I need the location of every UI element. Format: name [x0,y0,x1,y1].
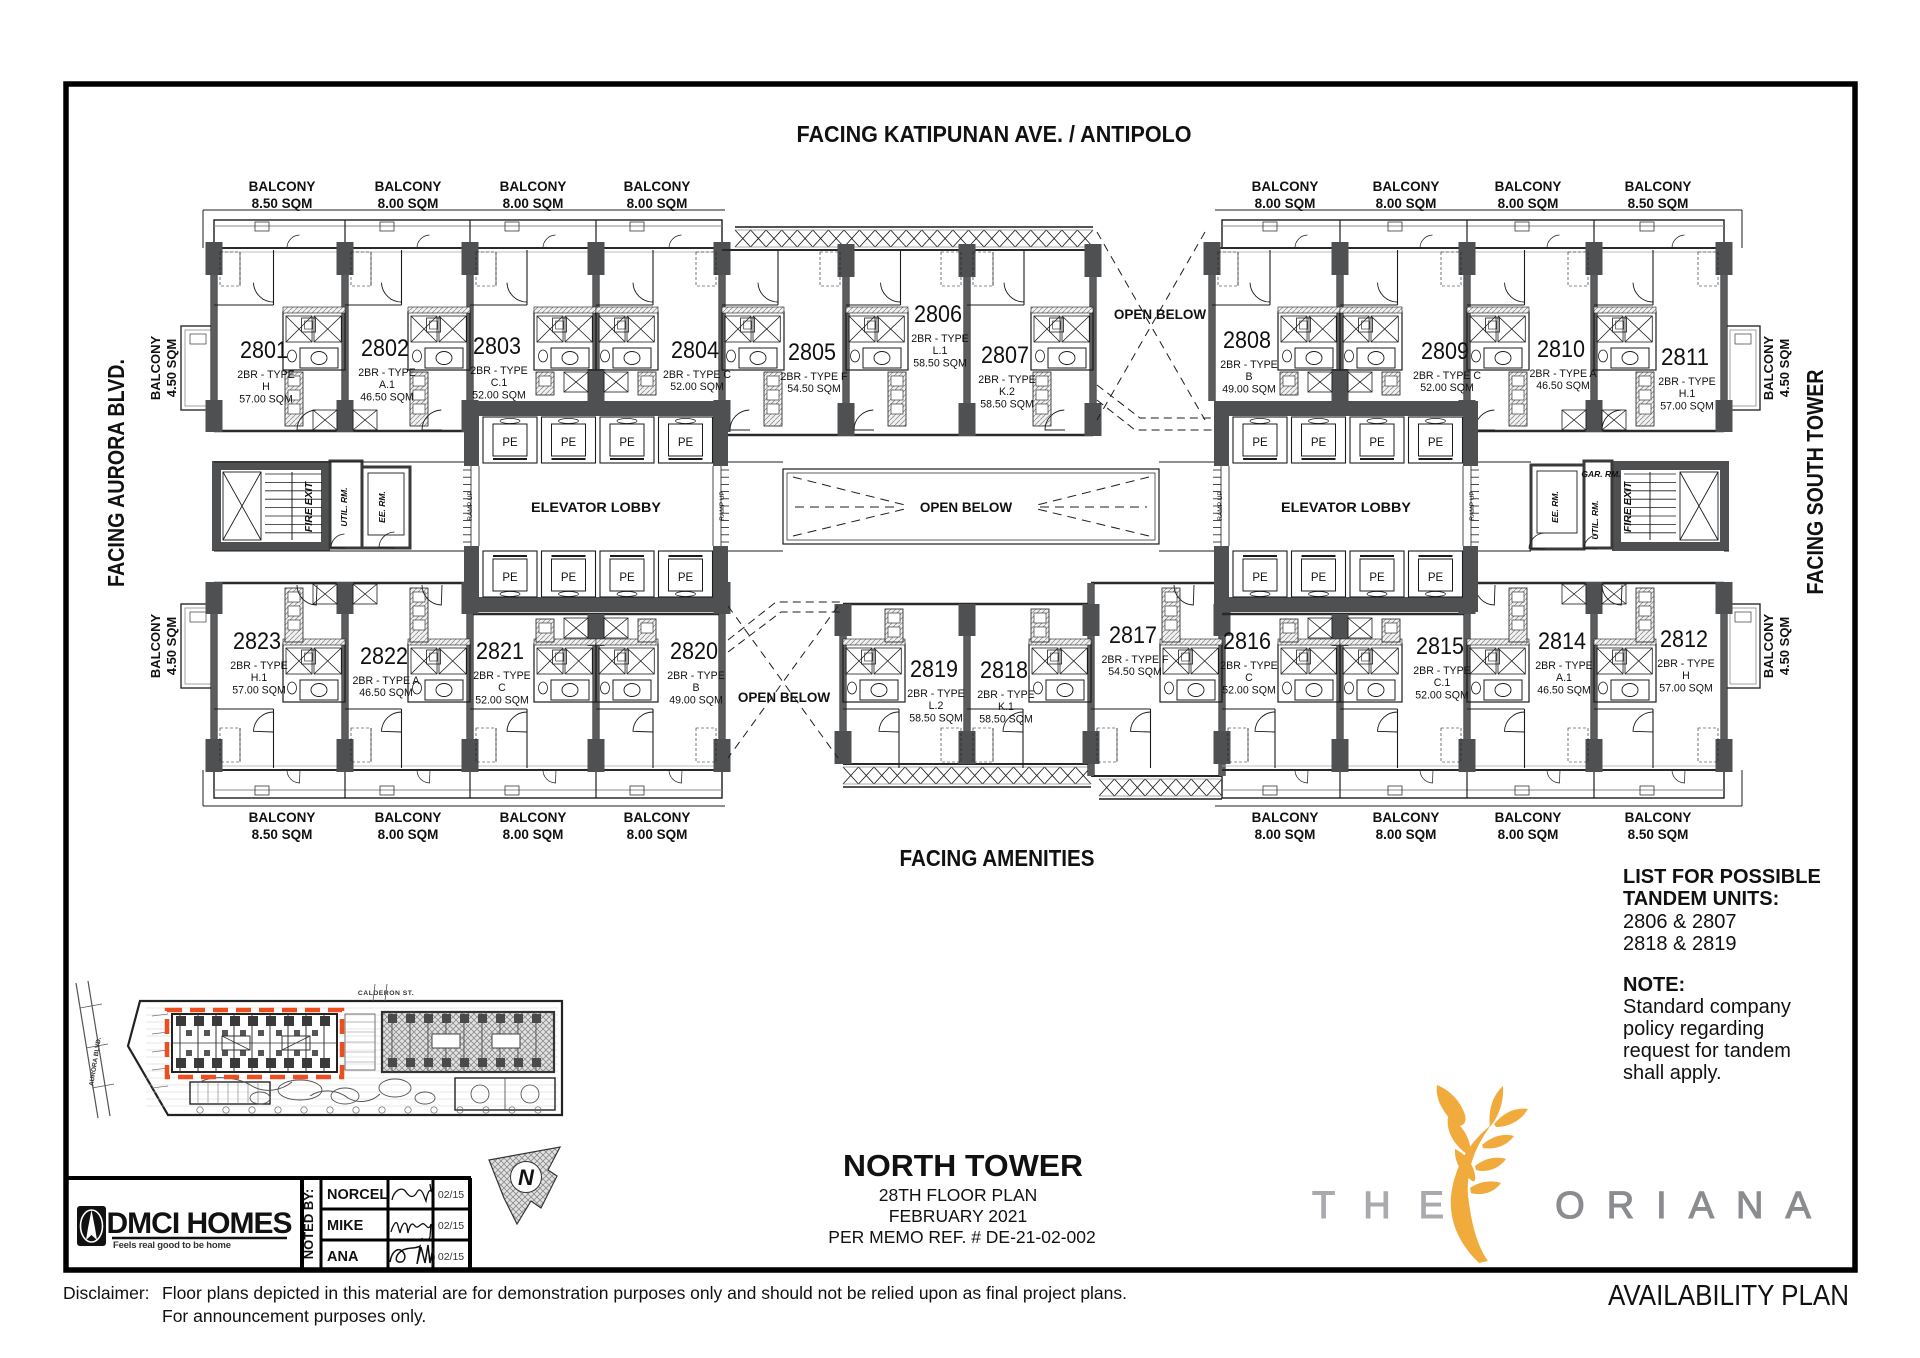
svg-text:8.00 SQM: 8.00 SQM [1498,196,1559,211]
svg-text:2BR - TYPE: 2BR - TYPE [978,374,1036,386]
svg-text:28TH FLOOR PLAN: 28TH FLOOR PLAN [879,1185,1038,1205]
svg-text:2BR - TYPE: 2BR - TYPE [237,369,295,381]
svg-text:2BR - TYPE: 2BR - TYPE [977,689,1035,701]
svg-text:2806 & 2807: 2806 & 2807 [1623,911,1736,933]
svg-text:2BR - TYPE: 2BR - TYPE [470,365,528,377]
svg-text:2817: 2817 [1109,622,1157,649]
svg-text:BALCONY: BALCONY [1252,810,1319,825]
svg-text:BALCONY: BALCONY [249,810,316,825]
svg-text:54.50 SQM: 54.50 SQM [1108,666,1162,678]
svg-text:8.00 SQM: 8.00 SQM [627,196,688,211]
svg-text:NORCEL: NORCEL [327,1187,388,1203]
svg-text:PE: PE [1252,572,1268,584]
svg-text:EE. RM.: EE. RM. [1550,491,1560,523]
svg-text:2814: 2814 [1538,628,1586,655]
svg-text:RAMP UP: RAMP UP [1469,491,1476,521]
svg-text:B: B [1245,371,1252,383]
svg-text:2BR - TYPE: 2BR - TYPE [358,367,416,379]
svg-text:2BR - TYPE A: 2BR - TYPE A [353,675,421,687]
svg-text:RAMP UP: RAMP UP [719,491,726,521]
svg-text:PE: PE [1369,437,1385,449]
svg-text:46.50 SQM: 46.50 SQM [360,391,414,403]
svg-text:PE: PE [1428,437,1444,449]
svg-text:8.00 SQM: 8.00 SQM [378,827,439,842]
svg-text:PE: PE [619,437,635,449]
svg-text:H: H [262,381,270,393]
svg-text:Disclaimer:: Disclaimer: [63,1283,150,1303]
svg-text:4.50 SQM: 4.50 SQM [164,339,179,398]
svg-text:PE: PE [678,572,694,584]
svg-text:N: N [518,1165,535,1190]
svg-text:2BR - TYPE C: 2BR - TYPE C [1413,370,1481,382]
svg-text:58.50 SQM: 58.50 SQM [909,712,963,724]
svg-text:BALCONY: BALCONY [1625,810,1692,825]
svg-text:BALCONY: BALCONY [500,810,567,825]
svg-text:2818: 2818 [980,657,1028,684]
svg-text:PE: PE [619,572,635,584]
svg-text:PE: PE [1428,572,1444,584]
svg-text:2822: 2822 [360,643,408,670]
svg-text:PE: PE [1252,437,1268,449]
svg-text:PE: PE [561,437,577,449]
svg-text:2802: 2802 [361,335,409,362]
svg-text:52.00 SQM: 52.00 SQM [472,389,526,401]
svg-text:C.1: C.1 [491,377,508,389]
svg-text:C: C [498,682,506,694]
svg-text:46.50 SQM: 46.50 SQM [1536,380,1590,392]
svg-text:8.00 SQM: 8.00 SQM [503,196,564,211]
svg-text:Floor plans depicted in this m: Floor plans depicted in this material ar… [162,1283,1127,1303]
svg-text:policy regarding: policy regarding [1623,1018,1764,1040]
svg-text:52.00 SQM: 52.00 SQM [1420,382,1474,394]
svg-text:B: B [692,682,699,694]
svg-text:BALCONY: BALCONY [624,179,691,194]
svg-text:2810: 2810 [1537,336,1585,363]
svg-text:FEBRUARY 2021: FEBRUARY 2021 [889,1206,1027,1226]
svg-text:2819: 2819 [910,656,958,683]
svg-text:ELEVATOR LOBBY: ELEVATOR LOBBY [1281,500,1411,515]
svg-text:4.50 SQM: 4.50 SQM [1777,339,1792,398]
svg-text:OPEN BELOW: OPEN BELOW [1114,307,1207,322]
svg-text:C.1: C.1 [1434,677,1451,689]
svg-text:52.00 SQM: 52.00 SQM [1222,684,1276,696]
svg-text:UTIL. RM.: UTIL. RM. [339,487,349,526]
svg-text:57.00 SQM: 57.00 SQM [239,393,293,405]
svg-text:2823: 2823 [233,628,281,655]
svg-text:54.50 SQM: 54.50 SQM [787,383,841,395]
svg-text:2BR - TYPE: 2BR - TYPE [1658,376,1716,388]
svg-text:8.00 SQM: 8.00 SQM [627,827,688,842]
svg-text:8.00 SQM: 8.00 SQM [1376,196,1437,211]
svg-text:8.00 SQM: 8.00 SQM [1376,827,1437,842]
svg-text:NORTH TOWER: NORTH TOWER [843,1148,1083,1183]
svg-text:K.2: K.2 [999,386,1015,398]
svg-text:BALCONY: BALCONY [1625,179,1692,194]
svg-text:2818 & 2819: 2818 & 2819 [1623,933,1736,955]
svg-text:8.50 SQM: 8.50 SQM [252,196,313,211]
svg-text:2806: 2806 [914,301,962,328]
svg-text:2801: 2801 [240,337,288,364]
svg-text:THE: THE [1312,1185,1472,1227]
svg-text:8.00 SQM: 8.00 SQM [503,827,564,842]
svg-text:49.00 SQM: 49.00 SQM [669,694,723,706]
svg-text:OPEN BELOW: OPEN BELOW [738,690,831,705]
svg-text:Feels real good to be home: Feels real good to be home [113,1240,231,1251]
svg-text:2BR - TYPE F: 2BR - TYPE F [1102,654,1169,666]
svg-text:2804: 2804 [671,337,719,364]
svg-text:4.50 SQM: 4.50 SQM [164,617,179,676]
svg-text:2BR - TYPE F: 2BR - TYPE F [781,371,848,383]
svg-text:8.00 SQM: 8.00 SQM [378,196,439,211]
svg-text:shall apply.: shall apply. [1623,1062,1722,1084]
svg-text:57.00 SQM: 57.00 SQM [1660,400,1714,412]
svg-text:PER MEMO REF. # DE-21-02-002: PER MEMO REF. # DE-21-02-002 [828,1227,1095,1247]
svg-text:TANDEM UNITS:: TANDEM UNITS: [1623,888,1779,910]
svg-text:BALCONY: BALCONY [1761,614,1776,679]
svg-text:57.00 SQM: 57.00 SQM [1659,682,1713,694]
svg-text:BALCONY: BALCONY [148,336,163,401]
svg-text:BALCONY: BALCONY [500,179,567,194]
svg-text:L.2: L.2 [929,700,944,712]
svg-text:8.00 SQM: 8.00 SQM [1498,827,1559,842]
svg-text:2809: 2809 [1421,338,1469,365]
svg-text:EE. RM.: EE. RM. [377,491,387,523]
svg-text:BALCONY: BALCONY [1495,810,1562,825]
svg-text:DMCI HOMES: DMCI HOMES [107,1207,292,1240]
svg-text:2BR - TYPE: 2BR - TYPE [1220,660,1278,672]
svg-text:2808: 2808 [1223,327,1271,354]
svg-text:H: H [1682,670,1690,682]
svg-text:PE: PE [1311,437,1327,449]
svg-text:ELEVATOR LOBBY: ELEVATOR LOBBY [531,500,661,515]
svg-text:2BR - TYPE: 2BR - TYPE [473,670,531,682]
svg-text:L.1: L.1 [933,345,948,357]
svg-text:2812: 2812 [1660,626,1708,653]
svg-text:BALCONY: BALCONY [1252,179,1319,194]
svg-text:2BR - TYPE: 2BR - TYPE [1657,658,1715,670]
svg-text:GAR. RM.: GAR. RM. [1581,469,1620,479]
svg-text:FACING AURORA BLVD.: FACING AURORA BLVD. [103,359,129,587]
svg-text:02/15: 02/15 [438,1189,464,1201]
svg-text:02/15: 02/15 [438,1220,464,1232]
svg-text:BALCONY: BALCONY [375,179,442,194]
svg-text:Standard company: Standard company [1623,996,1791,1018]
svg-text:RAMP UP: RAMP UP [1217,491,1224,521]
svg-text:For announcement purposes only: For announcement purposes only. [162,1306,426,1326]
svg-text:46.50 SQM: 46.50 SQM [1537,684,1591,696]
svg-text:2805: 2805 [788,339,836,366]
svg-text:RAMP UP: RAMP UP [467,491,474,521]
svg-text:52.00 SQM: 52.00 SQM [670,381,724,393]
svg-text:2BR - TYPE: 2BR - TYPE [230,660,288,672]
svg-text:2820: 2820 [670,638,718,665]
svg-text:AVAILABILITY PLAN: AVAILABILITY PLAN [1608,1280,1849,1312]
svg-text:BALCONY: BALCONY [148,614,163,679]
svg-text:2BR - TYPE: 2BR - TYPE [1535,660,1593,672]
svg-text:BALCONY: BALCONY [249,179,316,194]
svg-text:PE: PE [1369,572,1385,584]
svg-text:2BR - TYPE C: 2BR - TYPE C [663,369,731,381]
svg-text:4.50 SQM: 4.50 SQM [1777,617,1792,676]
svg-text:NOTED BY:: NOTED BY: [301,1189,316,1260]
svg-text:FACING KATIPUNAN AVE. / ANTIPO: FACING KATIPUNAN AVE. / ANTIPOLO [797,121,1192,147]
svg-text:BALCONY: BALCONY [1761,336,1776,401]
svg-text:52.00 SQM: 52.00 SQM [1415,689,1469,701]
svg-text:49.00 SQM: 49.00 SQM [1222,383,1276,395]
svg-text:2816: 2816 [1223,628,1271,655]
svg-text:2BR - TYPE: 2BR - TYPE [1413,665,1471,677]
svg-text:2815: 2815 [1416,633,1464,660]
svg-text:LIST FOR POSSIBLE: LIST FOR POSSIBLE [1623,866,1821,888]
svg-text:2BR - TYPE: 2BR - TYPE [911,333,969,345]
svg-text:46.50 SQM: 46.50 SQM [359,687,413,699]
svg-text:NOTE:: NOTE: [1623,974,1685,996]
svg-text:BALCONY: BALCONY [1495,179,1562,194]
svg-text:8.50 SQM: 8.50 SQM [1628,827,1689,842]
svg-text:PE: PE [502,572,518,584]
svg-text:FACING AMENITIES: FACING AMENITIES [900,845,1095,871]
svg-text:BALCONY: BALCONY [624,810,691,825]
svg-text:2811: 2811 [1661,344,1709,371]
svg-text:H.1: H.1 [251,672,268,684]
svg-text:PE: PE [1311,572,1327,584]
svg-text:2BR - TYPE A: 2BR - TYPE A [1530,368,1598,380]
svg-text:8.50 SQM: 8.50 SQM [252,827,313,842]
svg-text:8.50 SQM: 8.50 SQM [1628,196,1689,211]
svg-text:BALCONY: BALCONY [1373,810,1440,825]
svg-text:ANA: ANA [327,1249,359,1265]
svg-text:FIRE EXIT: FIRE EXIT [303,480,315,532]
svg-text:PE: PE [678,437,694,449]
svg-text:H.1: H.1 [1679,388,1696,400]
svg-text:OPEN BELOW: OPEN BELOW [920,500,1013,515]
svg-text:request for tandem: request for tandem [1623,1040,1791,1062]
svg-text:K.1: K.1 [998,701,1014,713]
svg-text:FACING SOUTH TOWER: FACING SOUTH TOWER [1802,369,1828,594]
svg-text:ORIANA: ORIANA [1555,1185,1833,1227]
svg-text:8.00 SQM: 8.00 SQM [1255,827,1316,842]
svg-text:A.1: A.1 [1556,672,1572,684]
svg-text:52.00 SQM: 52.00 SQM [475,694,529,706]
svg-text:2BR - TYPE: 2BR - TYPE [907,688,965,700]
svg-text:02/15: 02/15 [438,1251,464,1263]
svg-text:PE: PE [502,437,518,449]
svg-text:BALCONY: BALCONY [1373,179,1440,194]
svg-text:58.50 SQM: 58.50 SQM [913,357,967,369]
svg-text:A.1: A.1 [379,379,395,391]
svg-text:2803: 2803 [473,333,521,360]
svg-text:C: C [1245,672,1253,684]
svg-text:8.00 SQM: 8.00 SQM [1255,196,1316,211]
svg-text:2BR - TYPE: 2BR - TYPE [1220,359,1278,371]
svg-text:58.50 SQM: 58.50 SQM [979,713,1033,725]
svg-text:2821: 2821 [476,638,524,665]
svg-text:57.00 SQM: 57.00 SQM [232,684,286,696]
svg-text:58.50 SQM: 58.50 SQM [980,398,1034,410]
svg-text:PE: PE [561,572,577,584]
svg-text:BALCONY: BALCONY [375,810,442,825]
svg-text:2807: 2807 [981,342,1029,369]
svg-text:FIRE EXIT: FIRE EXIT [1622,480,1634,532]
svg-text:UTIL. RM.: UTIL. RM. [1590,500,1600,539]
svg-text:MIKE: MIKE [327,1218,364,1234]
svg-text:2BR - TYPE: 2BR - TYPE [667,670,725,682]
